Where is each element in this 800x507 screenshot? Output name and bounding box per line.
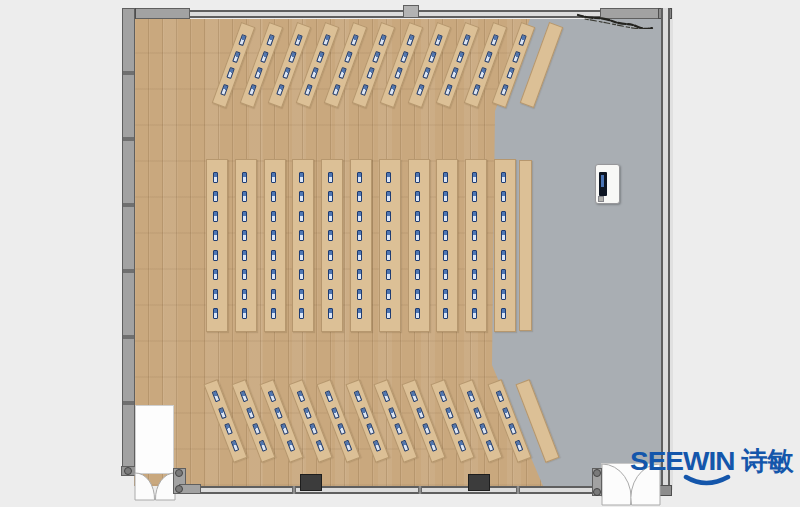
workstation-monitor [501, 230, 506, 241]
workstation-monitor [443, 289, 448, 300]
workstation-monitor [224, 423, 233, 435]
workstation-monitor [501, 211, 506, 222]
workstation-monitor [242, 191, 247, 202]
column-pillar [300, 474, 322, 491]
workstation-monitor [501, 172, 506, 183]
workstation-monitor [211, 391, 220, 403]
workstation-monitor [258, 440, 267, 452]
workstation-monitor [328, 308, 333, 319]
workstation-monitor [386, 269, 391, 280]
workstation-monitor [372, 440, 381, 452]
workstation-monitor [310, 68, 318, 80]
workstation-monitor [325, 391, 334, 403]
workstation-monitor [238, 34, 246, 46]
wall-joint [175, 485, 183, 493]
workstation-monitor [328, 191, 333, 202]
middle-columns-desk [408, 159, 430, 332]
workstation-monitor [338, 68, 346, 80]
workstation-monitor [299, 289, 304, 300]
workstation-monitor [429, 440, 438, 452]
workstation-monitor [276, 84, 284, 96]
wall-joint [593, 469, 601, 477]
wall-joint-tick [516, 486, 520, 494]
workstation-monitor [230, 440, 239, 452]
workstation-monitor [457, 440, 466, 452]
workstation-monitor [386, 230, 391, 241]
workstation-monitor [472, 250, 477, 261]
wall-right [661, 8, 670, 490]
workstation-monitor [299, 230, 304, 241]
workstation-monitor [423, 423, 432, 435]
entrance-alcove [135, 405, 174, 474]
wall-left [122, 8, 135, 468]
workstation-monitor [332, 84, 340, 96]
workstation-monitor [444, 84, 452, 96]
wall-joint [175, 469, 183, 477]
workstation-monitor [299, 308, 304, 319]
workstation-monitor [328, 269, 333, 280]
workstation-monitor [443, 230, 448, 241]
workstation-monitor [271, 308, 276, 319]
workstation-monitor [415, 308, 420, 319]
workstation-monitor [415, 211, 420, 222]
side-counter [519, 160, 532, 331]
workstation-monitor [213, 289, 218, 300]
workstation-monitor [428, 51, 436, 63]
door-swing-left-pair [133, 472, 177, 502]
workstation-monitor [287, 440, 296, 452]
workstation-monitor [360, 84, 368, 96]
workstation-monitor [357, 269, 362, 280]
workstation-monitor [478, 68, 486, 80]
workstation-monitor [472, 191, 477, 202]
workstation-monitor [297, 391, 306, 403]
workstation-monitor [415, 250, 420, 261]
workstation-monitor [415, 191, 420, 202]
workstation-monitor [443, 211, 448, 222]
workstation-monitor [406, 34, 414, 46]
middle-columns-desk [321, 159, 343, 332]
middle-columns-desk [206, 159, 228, 332]
workstation-monitor [386, 289, 391, 300]
workstation-monitor [366, 68, 374, 80]
workstation-monitor [473, 407, 482, 419]
workstation-monitor [218, 407, 227, 419]
workstation-monitor [394, 68, 402, 80]
workstation-monitor [357, 308, 362, 319]
workstation-monitor [467, 391, 476, 403]
workstation-monitor [416, 407, 425, 419]
workstation-monitor [357, 250, 362, 261]
workstation-monitor [232, 51, 240, 63]
workstation-monitor [501, 269, 506, 280]
workstation-monitor [501, 289, 506, 300]
workstation-monitor [501, 191, 506, 202]
middle-columns-desk [379, 159, 401, 332]
workstation-monitor [500, 84, 508, 96]
workstation-monitor [439, 391, 448, 403]
workstation-monitor [386, 172, 391, 183]
workstation-monitor [422, 68, 430, 80]
workstation-monitor [213, 211, 218, 222]
workstation-monitor [357, 289, 362, 300]
workstation-monitor [271, 211, 276, 222]
workstation-monitor [366, 423, 375, 435]
workstation-monitor [382, 391, 391, 403]
workstation-monitor [248, 84, 256, 96]
workstation-monitor [472, 172, 477, 183]
workstation-monitor [213, 191, 218, 202]
workstation-monitor [242, 308, 247, 319]
floorplan-canvas: SEEWIN 诗敏 [0, 0, 800, 507]
workstation-monitor [266, 34, 274, 46]
workstation-monitor [252, 423, 261, 435]
middle-columns-desk [436, 159, 458, 332]
wall-annotation-scribble [575, 11, 660, 29]
workstation-monitor [472, 308, 477, 319]
workstation-monitor [299, 269, 304, 280]
workstation-monitor [443, 250, 448, 261]
workstation-monitor [472, 211, 477, 222]
workstation-monitor [242, 250, 247, 261]
workstation-monitor [501, 308, 506, 319]
wall-joint-tick [418, 486, 422, 494]
workstation-monitor [388, 84, 396, 96]
workstation-monitor [299, 172, 304, 183]
workstation-monitor [512, 51, 520, 63]
workstation-monitor [315, 440, 324, 452]
workstation-monitor [451, 423, 460, 435]
workstation-monitor [472, 269, 477, 280]
workstation-monitor [268, 391, 277, 403]
wall-top-pillar [403, 5, 419, 18]
workstation-monitor [242, 289, 247, 300]
workstation-monitor [242, 269, 247, 280]
workstation-monitor [288, 51, 296, 63]
seewin-logo-smile-icon [682, 474, 734, 490]
workstation-monitor [415, 172, 420, 183]
podium [595, 164, 620, 204]
workstation-monitor [246, 407, 255, 419]
workstation-monitor [378, 34, 386, 46]
workstation-monitor [303, 407, 312, 419]
workstation-monitor [242, 211, 247, 222]
middle-columns-desk [235, 159, 257, 332]
workstation-monitor [353, 391, 362, 403]
workstation-monitor [386, 211, 391, 222]
workstation-monitor [472, 230, 477, 241]
workstation-monitor [443, 172, 448, 183]
workstation-monitor [490, 34, 498, 46]
workstation-monitor [514, 440, 523, 452]
workstation-monitor [260, 51, 268, 63]
workstation-monitor [443, 191, 448, 202]
wall-joint [124, 467, 132, 475]
workstation-monitor [386, 308, 391, 319]
workstation-monitor [410, 391, 419, 403]
workstation-monitor [502, 407, 511, 419]
workstation-monitor [271, 191, 276, 202]
workstation-monitor [213, 250, 218, 261]
middle-columns-desk [494, 159, 516, 332]
workstation-monitor [271, 289, 276, 300]
workstation-monitor [443, 308, 448, 319]
workstation-monitor [472, 289, 477, 300]
workstation-monitor [328, 230, 333, 241]
workstation-monitor [508, 423, 517, 435]
workstation-monitor [400, 51, 408, 63]
workstation-monitor [462, 34, 470, 46]
workstation-monitor [220, 84, 228, 96]
workstation-monitor [242, 230, 247, 241]
workstation-monitor [304, 84, 312, 96]
desk-layer [0, 0, 800, 507]
workstation-monitor [415, 269, 420, 280]
workstation-monitor [486, 440, 495, 452]
workstation-monitor [495, 391, 504, 403]
workstation-monitor [213, 230, 218, 241]
workstation-monitor [506, 68, 514, 80]
workstation-monitor [479, 423, 488, 435]
workstation-monitor [226, 68, 234, 80]
workstation-monitor [213, 308, 218, 319]
workstation-monitor [281, 423, 290, 435]
podium-foot [598, 196, 604, 202]
workstation-monitor [328, 172, 333, 183]
workstation-monitor [328, 211, 333, 222]
workstation-monitor [400, 440, 409, 452]
workstation-monitor [484, 51, 492, 63]
workstation-monitor [299, 191, 304, 202]
workstation-monitor [344, 51, 352, 63]
workstation-monitor [350, 34, 358, 46]
workstation-monitor [282, 68, 290, 80]
workstation-monitor [386, 191, 391, 202]
workstation-monitor [450, 68, 458, 80]
workstation-monitor [271, 230, 276, 241]
workstation-monitor [274, 407, 283, 419]
workstation-monitor [328, 289, 333, 300]
workstation-monitor [240, 391, 249, 403]
workstation-monitor [386, 250, 391, 261]
workstation-monitor [501, 250, 506, 261]
workstation-monitor [213, 269, 218, 280]
workstation-monitor [415, 230, 420, 241]
workstation-monitor [357, 172, 362, 183]
middle-columns-desk [465, 159, 487, 332]
workstation-monitor [254, 68, 262, 80]
workstation-monitor [357, 191, 362, 202]
wall-bottom [186, 486, 594, 494]
seewin-logo-text: SEEWIN [630, 449, 734, 475]
workstation-monitor [213, 172, 218, 183]
workstation-monitor [271, 172, 276, 183]
seewin-logo-cjk: 诗敏 [741, 448, 793, 474]
workstation-monitor [360, 407, 369, 419]
workstation-monitor [322, 34, 330, 46]
workstation-monitor [316, 51, 324, 63]
workstation-monitor [242, 172, 247, 183]
column-pillar [468, 474, 490, 491]
workstation-monitor [394, 423, 403, 435]
workstation-monitor [443, 269, 448, 280]
podium-screen [599, 172, 607, 196]
middle-columns-desk [350, 159, 372, 332]
workstation-monitor [337, 423, 346, 435]
workstation-monitor [271, 250, 276, 261]
workstation-monitor [416, 84, 424, 96]
seewin-logo: SEEWIN 诗敏 [630, 448, 798, 493]
workstation-monitor [434, 34, 442, 46]
workstation-monitor [309, 423, 318, 435]
workstation-monitor [299, 250, 304, 261]
workstation-monitor [299, 211, 304, 222]
workstation-monitor [331, 407, 340, 419]
workstation-monitor [372, 51, 380, 63]
workstation-monitor [518, 34, 526, 46]
wall-joint-tick [292, 486, 296, 494]
workstation-monitor [415, 289, 420, 300]
workstation-monitor [456, 51, 464, 63]
middle-columns-desk [264, 159, 286, 332]
workstation-monitor [271, 269, 276, 280]
workstation-monitor [357, 211, 362, 222]
workstation-monitor [294, 34, 302, 46]
workstation-monitor [357, 230, 362, 241]
middle-columns-desk [292, 159, 314, 332]
workstation-monitor [344, 440, 353, 452]
workstation-monitor [472, 84, 480, 96]
workstation-monitor [445, 407, 454, 419]
workstation-monitor [388, 407, 397, 419]
wall-joint [593, 488, 601, 496]
workstation-monitor [328, 250, 333, 261]
